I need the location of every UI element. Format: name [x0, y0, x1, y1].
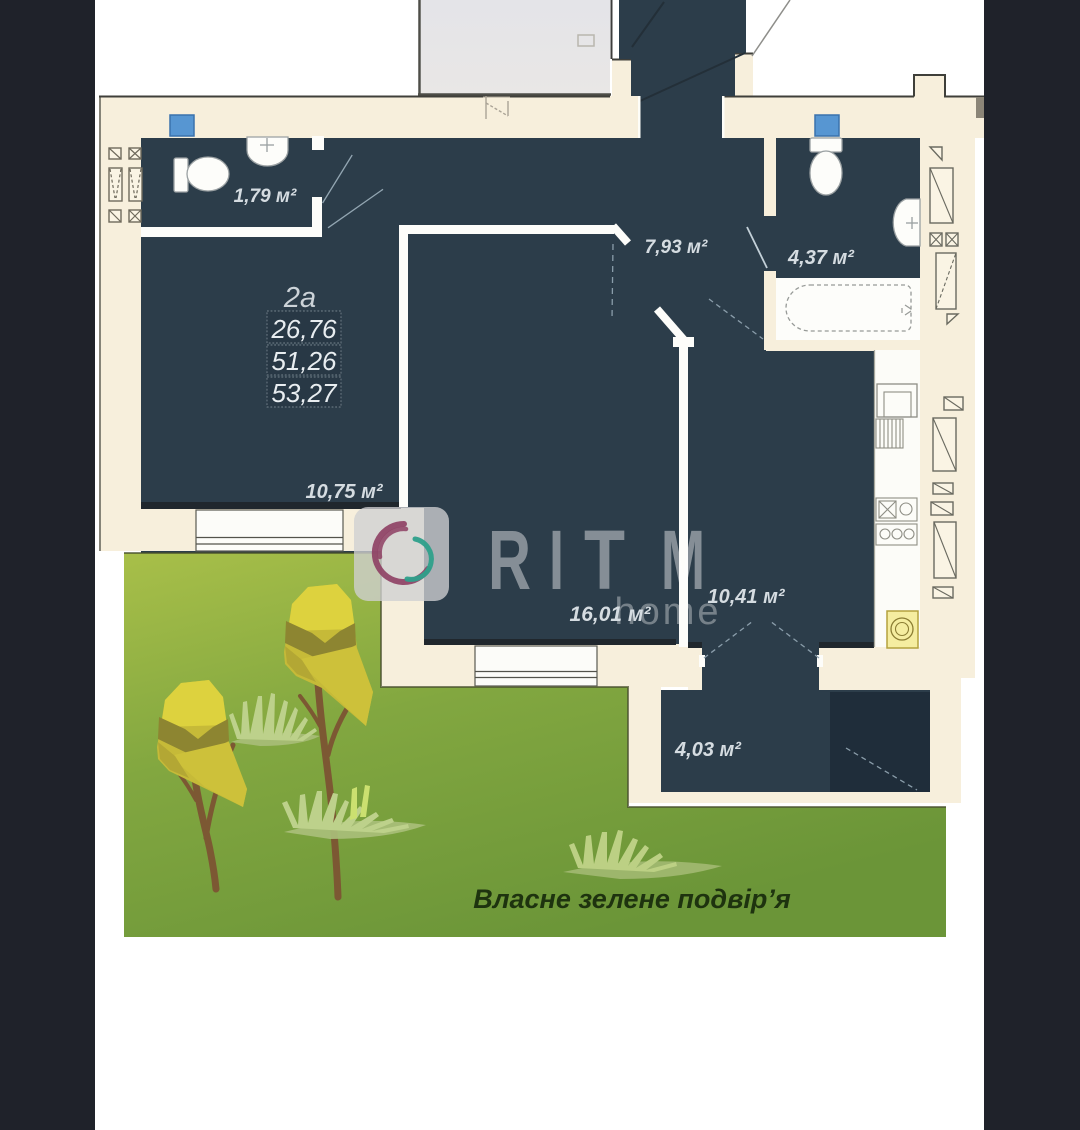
svg-text:51,26: 51,26: [271, 346, 337, 376]
svg-text:10,41 м²: 10,41 м²: [707, 586, 785, 608]
svg-text:2а: 2а: [283, 282, 316, 314]
svg-text:4,03 м²: 4,03 м²: [674, 739, 742, 761]
svg-text:1,79 м²: 1,79 м²: [234, 186, 297, 207]
svg-text:4,37 м²: 4,37 м²: [787, 247, 855, 269]
svg-text:16,01 м²: 16,01 м²: [570, 603, 652, 626]
svg-text:53,27: 53,27: [271, 378, 338, 408]
svg-text:26,76: 26,76: [270, 314, 337, 344]
svg-text:I: I: [549, 513, 564, 607]
svg-text:7,93 м²: 7,93 м²: [645, 237, 708, 258]
svg-text:10,75 м²: 10,75 м²: [305, 481, 383, 503]
svg-text:R: R: [488, 513, 531, 607]
svg-text:Власне зелене подвір’я: Власне зелене подвір’я: [473, 884, 791, 914]
